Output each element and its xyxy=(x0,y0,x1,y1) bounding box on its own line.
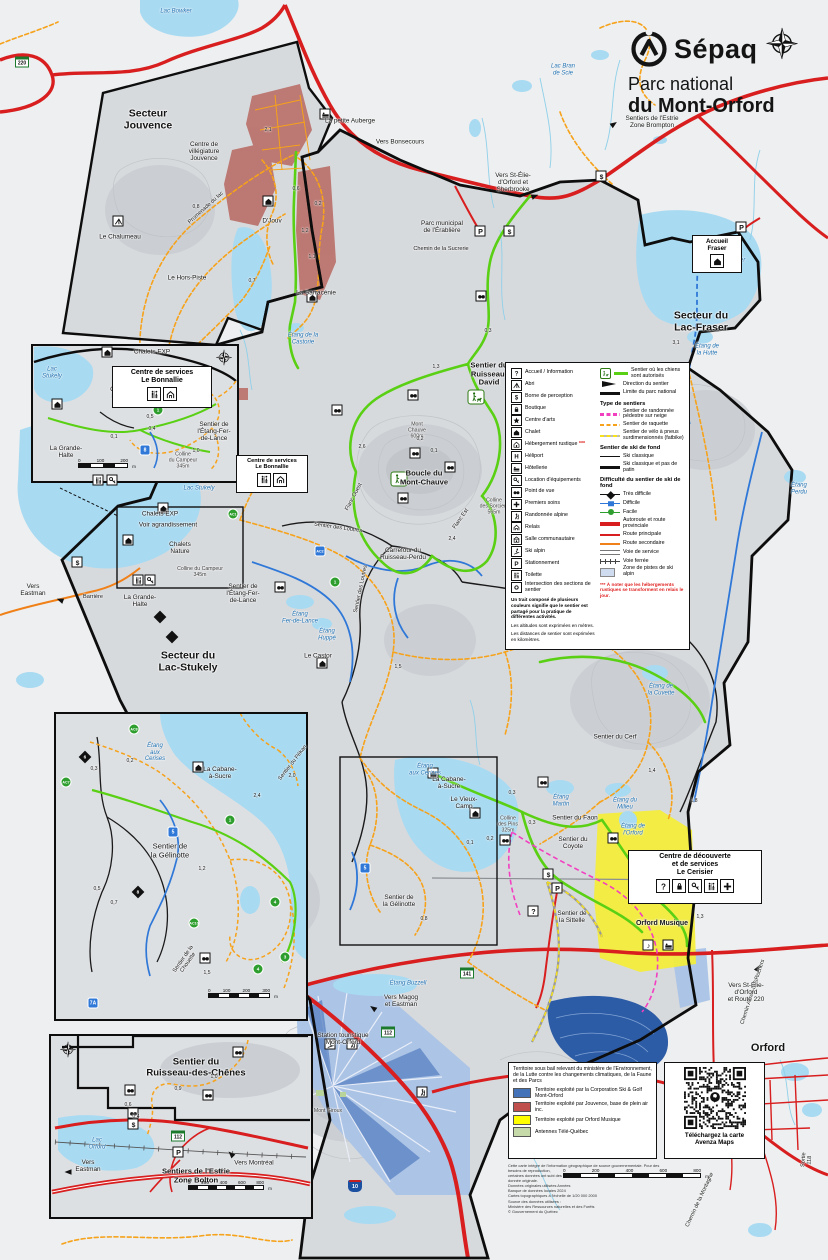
inset-bonnallie xyxy=(32,345,238,482)
inset-chenes xyxy=(50,1035,312,1218)
base-map: ? $ P H ♪ xyxy=(0,0,828,1260)
inset-gelinotte xyxy=(55,713,307,1020)
zone-orford-musique xyxy=(594,810,696,972)
map-canvas: ? $ P H ♪ xyxy=(0,0,828,1260)
